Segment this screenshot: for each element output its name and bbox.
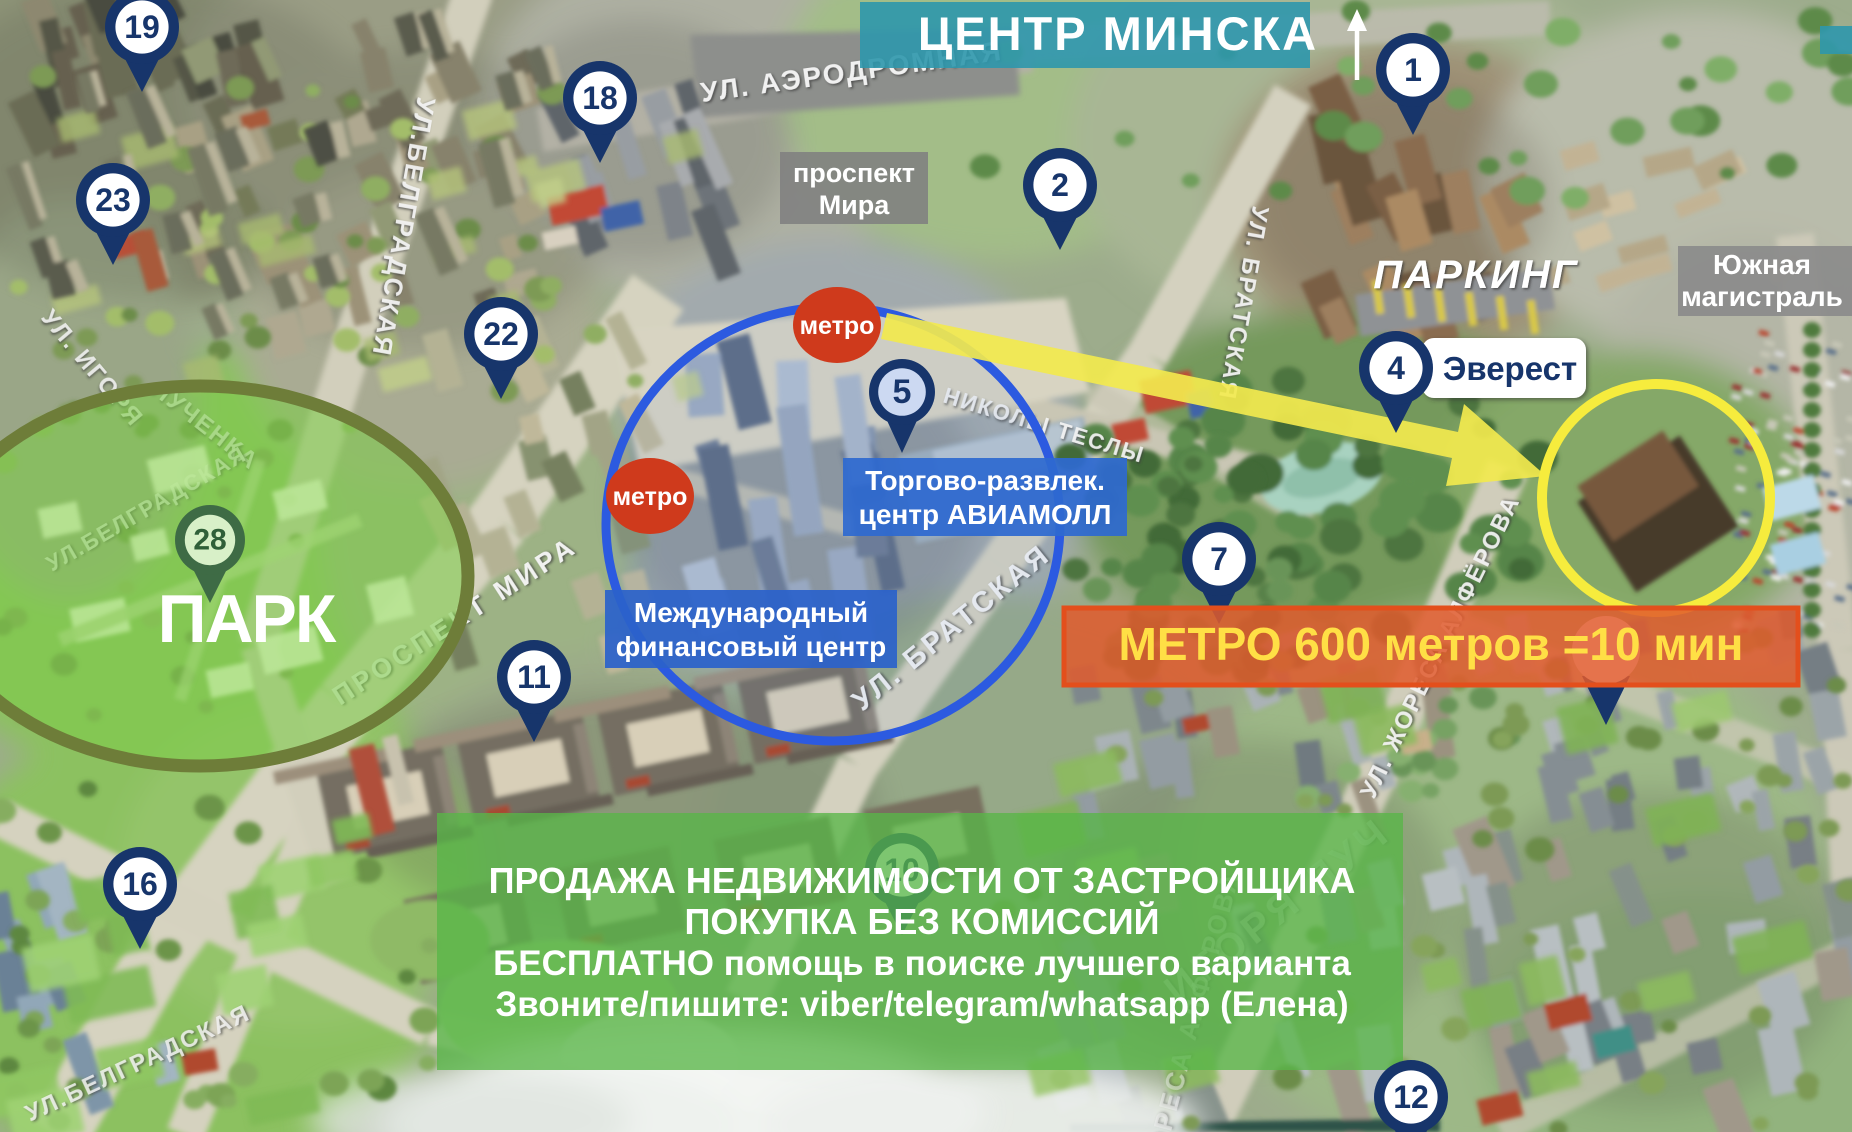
- svg-text:Звоните/пишите: viber/telegram: Звоните/пишите: viber/telegram/whatsapp …: [495, 985, 1348, 1024]
- svg-text:ПРОДАЖА НЕДВИЖИМОСТИ ОТ ЗАСТРО: ПРОДАЖА НЕДВИЖИМОСТИ ОТ ЗАСТРОЙЩИКА: [489, 859, 1356, 901]
- svg-text:11: 11: [517, 659, 551, 695]
- svg-text:метро: метро: [800, 312, 875, 340]
- svg-text:метро: метро: [613, 483, 688, 511]
- svg-text:ПОКУПКА БЕЗ КОМИССИЙ: ПОКУПКА БЕЗ КОМИССИЙ: [684, 900, 1159, 942]
- svg-text:4: 4: [1387, 350, 1405, 386]
- svg-text:1: 1: [1404, 52, 1422, 88]
- svg-text:финансовый центр: финансовый центр: [616, 631, 886, 662]
- svg-text:Торгово-развлек.: Торгово-развлек.: [865, 465, 1105, 496]
- svg-text:БЕСПЛАТНО помощь в поиске лучш: БЕСПЛАТНО помощь в поиске лучшего вариан…: [493, 944, 1351, 983]
- svg-text:ПАРК: ПАРК: [158, 581, 337, 657]
- svg-text:18: 18: [582, 80, 618, 116]
- svg-text:23: 23: [95, 182, 131, 218]
- svg-text:19: 19: [124, 9, 160, 45]
- svg-text:Эверест: Эверест: [1443, 350, 1577, 387]
- svg-text:28: 28: [193, 524, 226, 557]
- svg-text:2: 2: [1051, 167, 1069, 203]
- svg-text:5: 5: [893, 373, 912, 411]
- svg-text:7: 7: [1210, 541, 1228, 577]
- svg-text:Южная: Южная: [1713, 249, 1811, 280]
- svg-text:Мира: Мира: [819, 190, 891, 220]
- svg-text:ПАРКИНГ: ПАРКИНГ: [1373, 253, 1579, 297]
- svg-text:12: 12: [1393, 1079, 1429, 1115]
- svg-text:22: 22: [483, 316, 519, 352]
- svg-text:Международный: Международный: [634, 597, 868, 628]
- svg-text:ЦЕНТР МИНСКА: ЦЕНТР МИНСКА: [918, 7, 1318, 60]
- svg-text:16: 16: [122, 866, 158, 902]
- svg-text:центр АВИАМОЛЛ: центр АВИАМОЛЛ: [859, 499, 1112, 530]
- svg-text:проспект: проспект: [793, 158, 915, 188]
- svg-text:магистраль: магистраль: [1681, 281, 1843, 312]
- svg-text:МЕТРО 600 метров =10 мин: МЕТРО 600 метров =10 мин: [1119, 618, 1744, 670]
